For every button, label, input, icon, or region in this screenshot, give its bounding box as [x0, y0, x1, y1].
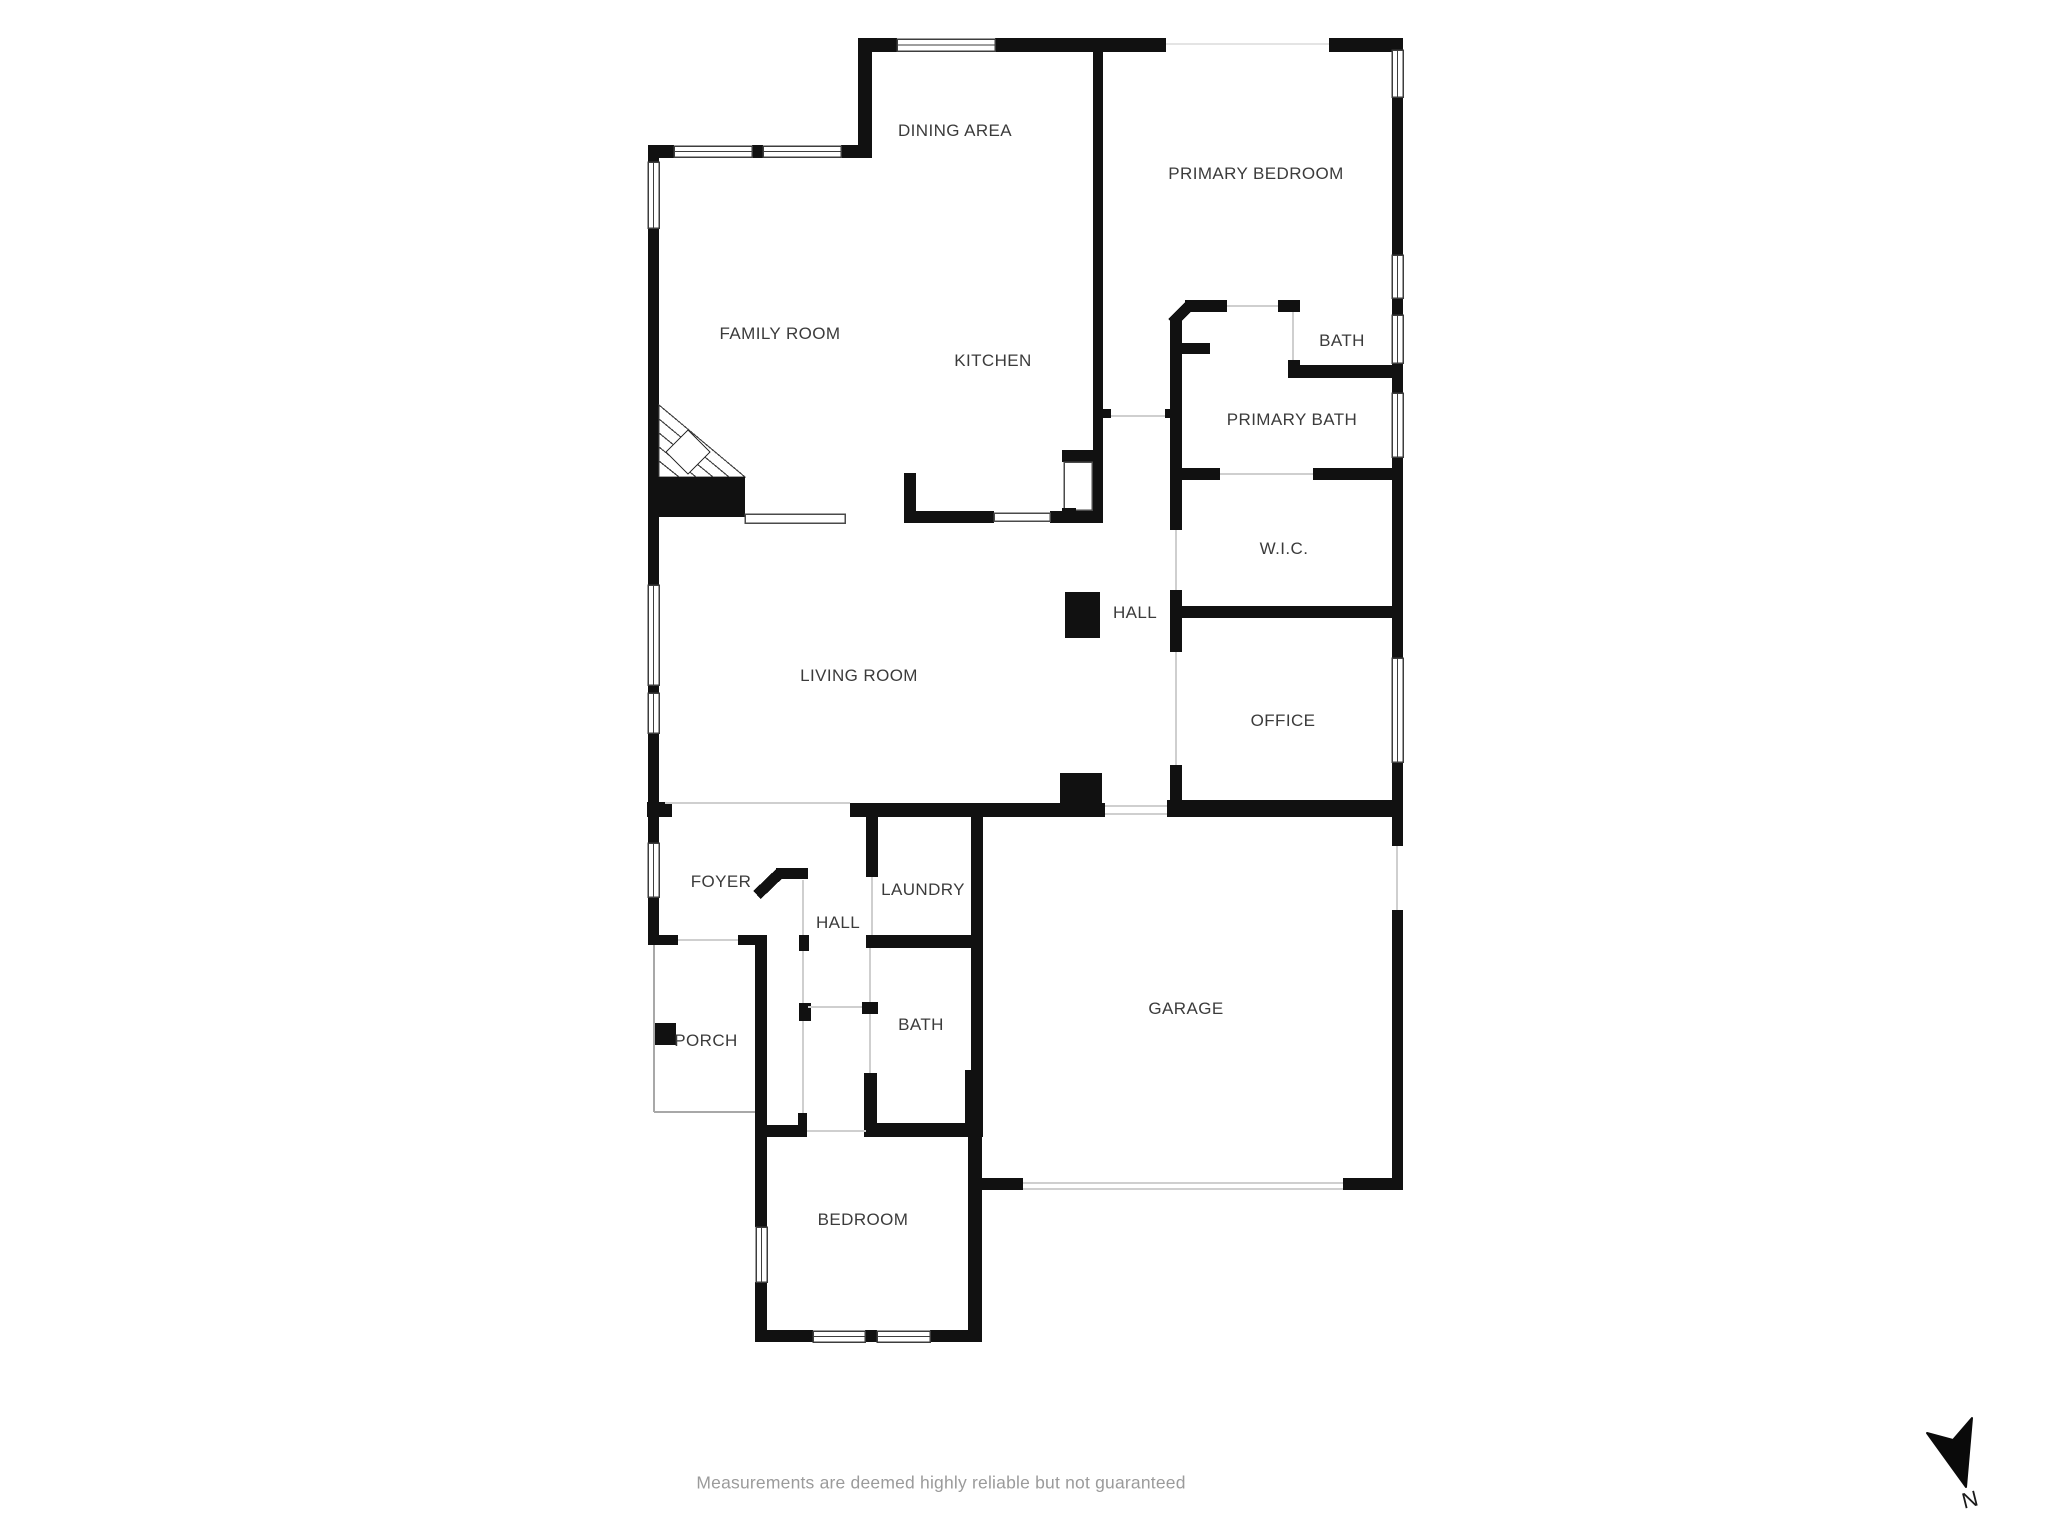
porch-outline [654, 945, 755, 1112]
room-label-wic: W.I.C. [1260, 539, 1309, 559]
room-label-hall-lower: HALL [816, 913, 860, 933]
floor-plan-drawing: N [0, 0, 2048, 1536]
room-label-garage: GARAGE [1148, 999, 1223, 1019]
north-arrow-icon [1927, 1418, 1972, 1487]
disclaimer-text: Measurements are deemed highly reliable … [696, 1473, 1185, 1494]
north-arrow: N [1927, 1418, 1981, 1514]
room-label-porch: PORCH [674, 1031, 737, 1051]
room-label-office: OFFICE [1251, 711, 1316, 731]
room-label-foyer: FOYER [691, 872, 752, 892]
interior-walls [755, 38, 1403, 1137]
room-label-hall-upper: HALL [1113, 603, 1157, 623]
hall-column [1060, 773, 1102, 815]
room-label-bedroom: BEDROOM [818, 1210, 909, 1230]
north-label: N [1959, 1485, 1980, 1513]
room-label-dining-area: DINING AREA [898, 121, 1012, 141]
room-label-family-room: FAMILY ROOM [720, 324, 841, 344]
room-label-primary-bedroom: PRIMARY BEDROOM [1168, 164, 1343, 184]
room-label-bath-lower: BATH [898, 1015, 944, 1035]
room-label-laundry: LAUNDRY [881, 880, 965, 900]
room-label-bath-upper: BATH [1319, 331, 1365, 351]
porch-post [655, 1023, 676, 1045]
floor-plan-page: N DINING AREA PRIMARY BEDROOM FAMILY ROO… [0, 0, 2048, 1536]
fireplace-icon [648, 405, 845, 523]
exterior-walls [647, 38, 1403, 1342]
room-label-primary-bath: PRIMARY BATH [1227, 410, 1357, 430]
hall-column [1065, 592, 1100, 638]
room-label-living-room: LIVING ROOM [800, 666, 918, 686]
room-label-kitchen: KITCHEN [954, 351, 1031, 371]
